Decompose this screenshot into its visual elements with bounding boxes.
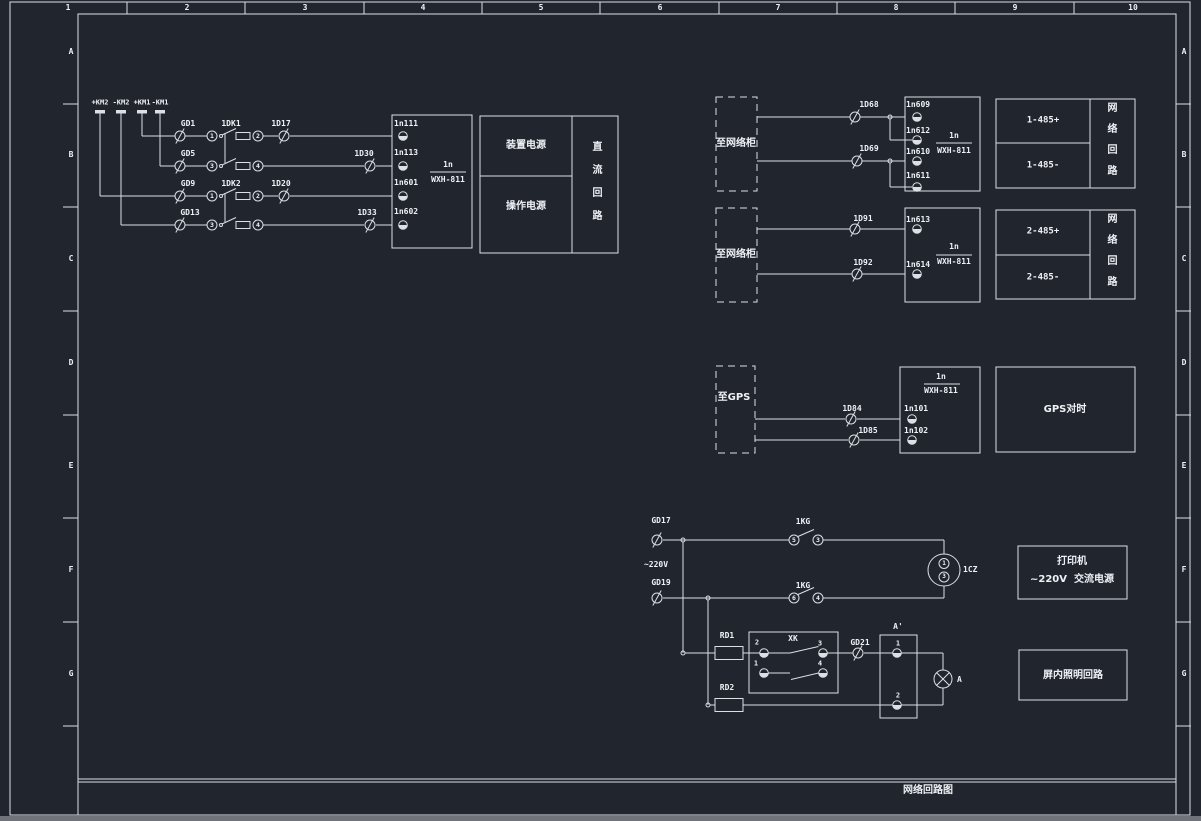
- zone-row-label-left: C: [69, 255, 74, 263]
- terminal-label: 1n612: [906, 127, 930, 135]
- fuse-symbol: [236, 163, 250, 170]
- dc-circuit: [95, 110, 618, 253]
- terminal-symbol: [760, 669, 769, 678]
- terminal-label: 1n613: [906, 216, 930, 224]
- terminal-number: 1: [210, 133, 214, 140]
- connector-label: 1D92: [853, 259, 872, 267]
- socket-label: 1CZ: [963, 566, 977, 574]
- terminal-number: 2: [256, 193, 260, 200]
- terminal-symbol: [913, 157, 922, 166]
- dest-label: 至GPS: [718, 393, 751, 403]
- connector-symbol: [365, 159, 375, 174]
- printer-box: [1018, 546, 1127, 599]
- zone-col-label: 9: [1013, 4, 1018, 12]
- connector-label: GD5: [181, 150, 195, 158]
- bus-label: -KM2: [113, 100, 130, 107]
- terminal-symbol: [893, 701, 902, 710]
- switch-blade: [791, 673, 819, 680]
- connector-symbol: [365, 218, 375, 233]
- switch-label: 1DK2: [221, 180, 240, 188]
- bus-label: -KM1: [152, 100, 169, 107]
- terminal-label: 1n609: [906, 101, 930, 109]
- connector-symbol: [175, 218, 185, 233]
- connector-symbol: [853, 646, 863, 661]
- socket-symbol: [928, 554, 960, 586]
- terminal-symbol: [819, 649, 828, 658]
- connector-label: GD13: [180, 209, 199, 217]
- bus-terminal-bar: [116, 110, 126, 114]
- connector-label: 1D68: [859, 101, 878, 109]
- device-model: WXH-811: [937, 147, 971, 155]
- sheet-title: 网络回路图: [903, 786, 953, 796]
- device-name: 1n: [443, 161, 453, 169]
- fuse-label: RD2: [720, 684, 734, 692]
- connector-label: GD17: [651, 517, 670, 525]
- connector-label: 1D17: [271, 120, 290, 128]
- connector-symbol: [846, 412, 856, 427]
- fuse-symbol: [236, 133, 250, 140]
- terminal-symbol: [760, 649, 769, 658]
- fuse-symbol: [715, 647, 743, 660]
- terminal-symbol: [399, 221, 408, 230]
- zone-row-label-left: B: [69, 151, 74, 159]
- socket-terminal-number: 3: [942, 574, 946, 580]
- terminal-number: 6: [792, 595, 796, 602]
- terminal-symbol: [893, 649, 902, 658]
- switch-blade: [798, 530, 814, 537]
- terminal-number: 4: [256, 222, 260, 229]
- terminal-label: 1n610: [906, 148, 930, 156]
- bus-label: +KM1: [134, 100, 151, 107]
- terminal-number: 3: [210, 163, 214, 170]
- network-loop-label: 网络回路: [1105, 213, 1115, 297]
- rs485-label: 2-485-: [1027, 274, 1060, 283]
- drawing-sheet: 1 2 3 4 5 6 7 8 9 10 A B C D E F G A B C…: [0, 0, 1201, 821]
- fuse-symbol: [236, 193, 250, 200]
- terminal-number: 4: [256, 163, 260, 170]
- zone-col-label: 10: [1128, 4, 1138, 12]
- rs485-label: 1-485+: [1027, 117, 1060, 126]
- terminal-symbol: [913, 225, 922, 234]
- terminal-symbol: [399, 192, 408, 201]
- terminal-label: 1n614: [906, 261, 930, 269]
- zone-row-label-left: F: [69, 566, 74, 574]
- terminal-symbol: [913, 183, 922, 192]
- rs485-label: 1-485-: [1027, 162, 1060, 171]
- terminal-number: 1: [896, 641, 900, 648]
- zone-col-label: 8: [894, 4, 899, 12]
- device-name: 1n: [949, 243, 959, 251]
- device-name: 1n: [949, 132, 959, 140]
- zone-col-label: 5: [539, 4, 544, 12]
- connector-symbol: [175, 189, 185, 204]
- connector-label: 1D85: [858, 427, 877, 435]
- terminal-label: 1n101: [904, 405, 928, 413]
- printer-label: 打印机: [1057, 557, 1087, 567]
- terminal-number: 2: [896, 693, 900, 700]
- zone-row-label-left: G: [69, 670, 74, 678]
- bus-terminal-bar: [155, 110, 165, 114]
- zone-row-label-right: E: [1182, 462, 1187, 470]
- connector-label: 1D30: [354, 150, 373, 158]
- terminal-number: 4: [818, 661, 822, 668]
- connector-label: GD1: [181, 120, 195, 128]
- terminal-label: 1n102: [904, 427, 928, 435]
- network-loop-label: 网络回路: [1105, 102, 1115, 186]
- connector-label: 1D33: [357, 209, 376, 217]
- power-box-top-label: 装置电源: [506, 141, 546, 151]
- power-box-bottom-label: 操作电源: [506, 202, 546, 212]
- connector-label: GD9: [181, 180, 195, 188]
- connector-symbol: [652, 533, 662, 548]
- dest-label: 至网络柜: [716, 250, 756, 260]
- switch-label: XK: [788, 635, 798, 643]
- lamp-label: A: [957, 676, 962, 684]
- lighting-box-label: 屏内照明回路: [1043, 671, 1103, 681]
- socket-terminal-number: 1: [942, 561, 946, 567]
- dest-label: 至网络柜: [716, 139, 756, 149]
- connector-label: GD19: [651, 579, 670, 587]
- dest-box: [716, 366, 755, 453]
- terminal-symbol: [399, 162, 408, 171]
- terminal-symbol: [819, 669, 828, 678]
- terminal-label: 1n601: [394, 179, 418, 187]
- zone-col-label: 6: [658, 4, 663, 12]
- bus-terminal-bar: [95, 110, 105, 114]
- zone-row-label-left: D: [69, 359, 74, 367]
- zone-row-label-right: C: [1182, 255, 1187, 263]
- block-label: A': [893, 623, 903, 631]
- connector-symbol: [852, 267, 862, 282]
- zone-row-label-right: D: [1182, 359, 1187, 367]
- zone-row-label-right: F: [1182, 566, 1187, 574]
- terminal-number: 3: [816, 537, 820, 544]
- switch-label: 1DK1: [221, 120, 240, 128]
- bus-terminal-bar: [137, 110, 147, 114]
- switch-label: 1KG: [796, 518, 810, 526]
- connector-symbol: [852, 154, 862, 169]
- voltage-label: ~220V: [644, 561, 668, 569]
- terminal-label: 1n113: [394, 149, 418, 157]
- terminal-symbol: [913, 270, 922, 279]
- terminal-number: 1: [754, 661, 758, 668]
- device-model: WXH-811: [431, 176, 465, 184]
- connector-label: 1D91: [853, 215, 872, 223]
- zone-col-label: 1: [66, 4, 71, 12]
- terminal-symbol: [908, 436, 917, 445]
- zone-row-label-right: B: [1182, 151, 1187, 159]
- dc-loop-label: 直流回路: [590, 141, 600, 233]
- zone-row-label-left: A: [69, 48, 74, 56]
- connector-label: 1D84: [842, 405, 861, 413]
- device-model: WXH-811: [937, 258, 971, 266]
- terminal-symbol: [913, 136, 922, 145]
- connector-symbol: [175, 159, 185, 174]
- bus-label: +KM2: [92, 100, 109, 107]
- fuse-label: RD1: [720, 632, 734, 640]
- connector-symbol: [279, 129, 289, 144]
- terminal-symbol: [399, 132, 408, 141]
- terminal-number: 5: [792, 537, 796, 544]
- terminal-number: 3: [818, 641, 822, 648]
- connector-symbol: [279, 189, 289, 204]
- terminal-number: 4: [816, 595, 820, 602]
- terminal-label: 1n111: [394, 120, 418, 128]
- rs485-label: 2-485+: [1027, 228, 1060, 237]
- connector-symbol: [850, 222, 860, 237]
- terminal-number: 3: [210, 222, 214, 229]
- connector-symbol: [175, 129, 185, 144]
- fuse-symbol: [236, 222, 250, 229]
- lamp-icon: [934, 670, 952, 688]
- zone-row-label-right: G: [1182, 670, 1187, 678]
- terminal-number: 1: [210, 193, 214, 200]
- switch-label: 1KG: [796, 582, 810, 590]
- connector-label: 1D69: [859, 145, 878, 153]
- printer-power-label: ~220V 交流电源: [1030, 575, 1114, 585]
- zone-col-label: 7: [776, 4, 781, 12]
- terminal-symbol: [908, 415, 917, 424]
- connector-label: 1D20: [271, 180, 290, 188]
- fuse-symbol: [715, 699, 743, 712]
- terminal-number: 2: [755, 640, 759, 647]
- lighting-circuit: [681, 542, 1127, 718]
- terminal-label: 1n602: [394, 208, 418, 216]
- connector-symbol: [652, 591, 662, 606]
- terminal-symbol: [913, 113, 922, 122]
- zone-row-label-right: A: [1182, 48, 1187, 56]
- connector-symbol: [850, 110, 860, 125]
- switch-blade: [790, 647, 819, 654]
- device-name: 1n: [936, 373, 946, 381]
- connector-label: GD21: [850, 639, 869, 647]
- gps-box-label: GPS对时: [1044, 405, 1087, 415]
- zone-col-label: 2: [185, 4, 190, 12]
- ac-circuit: [652, 530, 1127, 606]
- zone-col-label: 4: [421, 4, 426, 12]
- zone-col-label: 3: [303, 4, 308, 12]
- device-model: WXH-811: [924, 387, 958, 395]
- bottom-edge-strip: [0, 816, 1201, 821]
- terminal-label: 1n611: [906, 172, 930, 180]
- zone-row-label-left: E: [69, 462, 74, 470]
- terminal-number: 2: [256, 133, 260, 140]
